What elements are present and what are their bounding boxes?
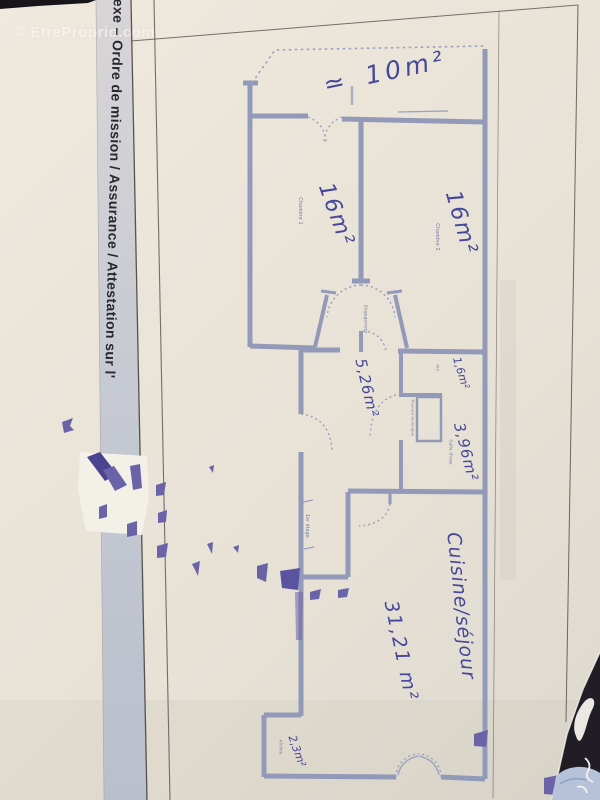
room-label-chambre2: Chambre 2	[434, 223, 440, 250]
room-label-etage: 1er étage	[304, 514, 310, 538]
floor-plan-drawing	[0, 0, 600, 800]
room-label-wc: WC	[436, 364, 441, 371]
room-label-degagement: Dégagement	[364, 305, 369, 334]
room-label-alcove: Alcôve	[279, 739, 284, 754]
paper-crease-shadow	[500, 280, 516, 580]
room-label-salle-deau: Salle d'eau	[449, 439, 454, 464]
watermark: © EtreProprio.com	[14, 24, 155, 41]
photo-background-top-edge	[0, 0, 96, 9]
photographed-floor-plan-document: © EtreProprio.com nexe – Ordre de missio…	[0, 0, 600, 800]
room-label-placard: Placard technique	[411, 399, 416, 436]
room-label-chambre1: Chambre 1	[297, 197, 303, 224]
